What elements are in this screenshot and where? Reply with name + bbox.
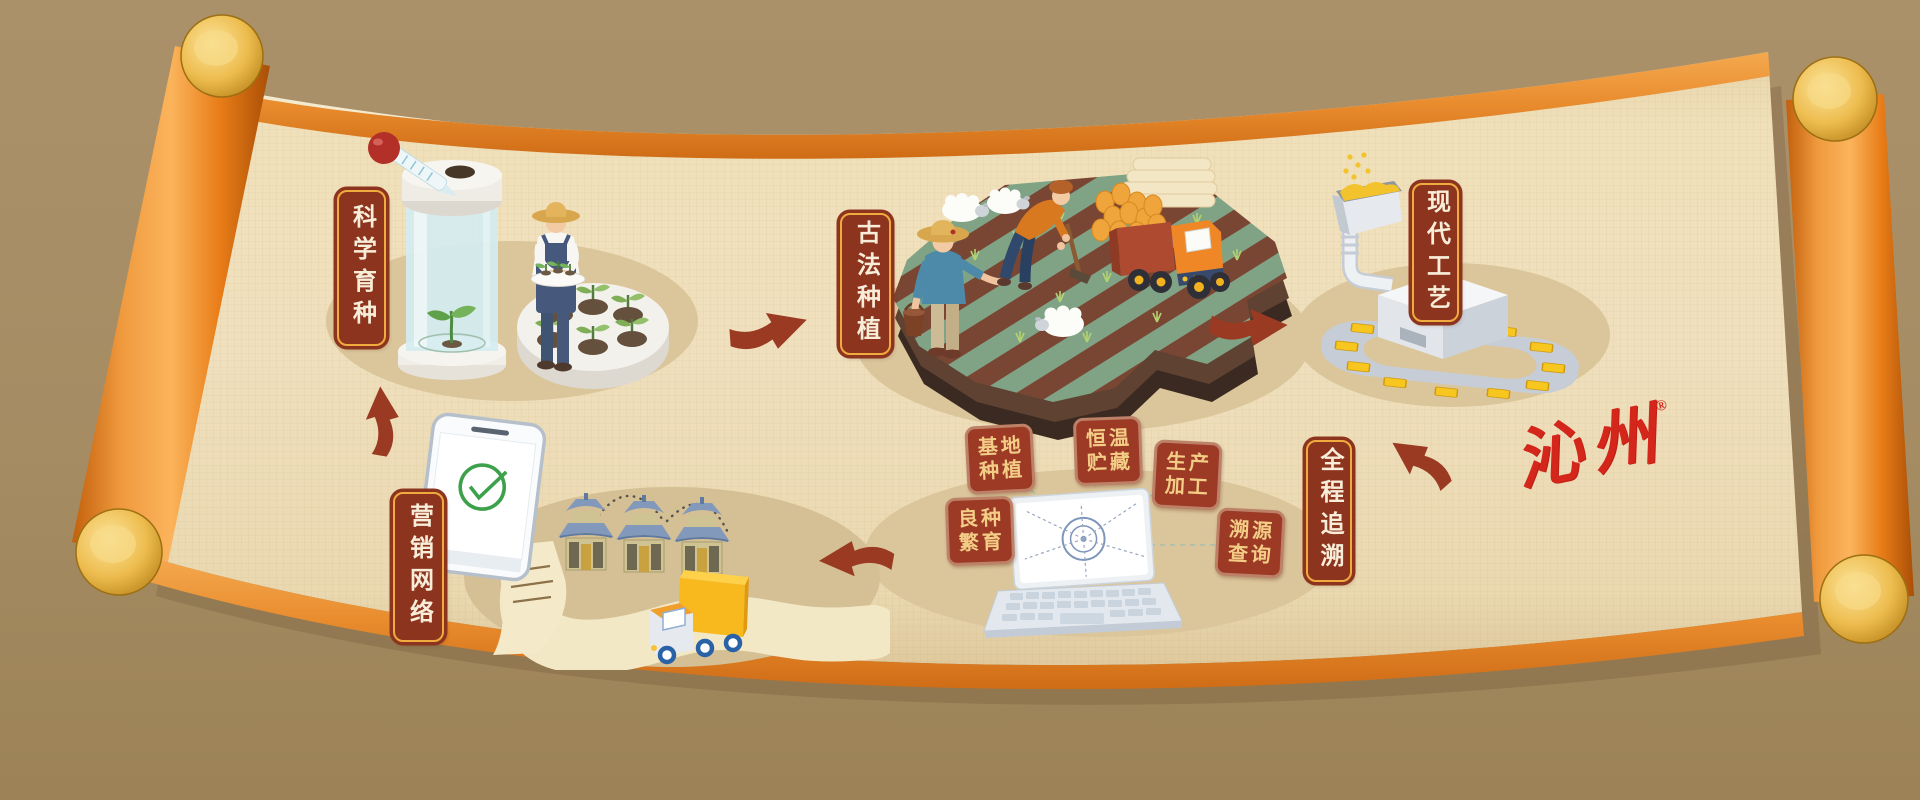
stage-plaque-full-traceability: 全程追溯 (1306, 440, 1352, 582)
stage-plaque-traditional-planting: 古法种植 (840, 213, 891, 355)
flow-arrow-breeding-to-planting (720, 297, 820, 366)
stage-plaque-modern-craft: 现代工艺 (1412, 183, 1459, 322)
stage-plaque-scientific-breeding: 科学育种 (337, 190, 386, 346)
tag-line: 加工 (1161, 474, 1211, 500)
tag-line: 繁育 (956, 531, 1006, 556)
tag-line: 查询 (1224, 542, 1274, 568)
trace-tag-trace-query: 溯源 查询 (1214, 507, 1285, 578)
flow-arrow-marketing-to-breeding (335, 372, 428, 469)
stage-label: 现代工艺 (1424, 189, 1448, 317)
tag-line: 种植 (976, 458, 1026, 484)
stage-label: 科学育种 (350, 204, 374, 332)
stage-plaque-marketing-network: 营销网络 (393, 492, 444, 642)
stage-label: 营销网络 (407, 503, 431, 631)
tag-line: 基地 (974, 434, 1024, 460)
tag-line: 贮藏 (1084, 451, 1134, 476)
tag-line: 良种 (955, 507, 1005, 532)
tag-line: 溯源 (1226, 518, 1276, 544)
registered-mark: ® (1654, 397, 1669, 416)
scroll-infographic: 基地 种植 恒温 贮藏 生产 加工 良种 繁育 溯源 查询 (0, 0, 1920, 800)
trace-tag-production-processing: 生产 加工 (1151, 439, 1222, 510)
scene-full-traceability: 基地 种植 恒温 贮藏 生产 加工 良种 繁育 溯源 查询 (860, 395, 1340, 650)
stage-label: 古法种植 (854, 220, 878, 348)
grain-hopper-icon (1332, 152, 1402, 235)
tag-line: 生产 (1163, 450, 1213, 476)
trace-tag-base-planting: 基地 种植 (964, 423, 1035, 494)
tag-line: 恒温 (1083, 427, 1133, 452)
stage-label: 全程追溯 (1317, 447, 1341, 575)
trace-tag-constant-temp-storage: 恒温 贮藏 (1073, 416, 1143, 486)
trace-tag-seed-breeding: 良种 繁育 (945, 496, 1015, 566)
